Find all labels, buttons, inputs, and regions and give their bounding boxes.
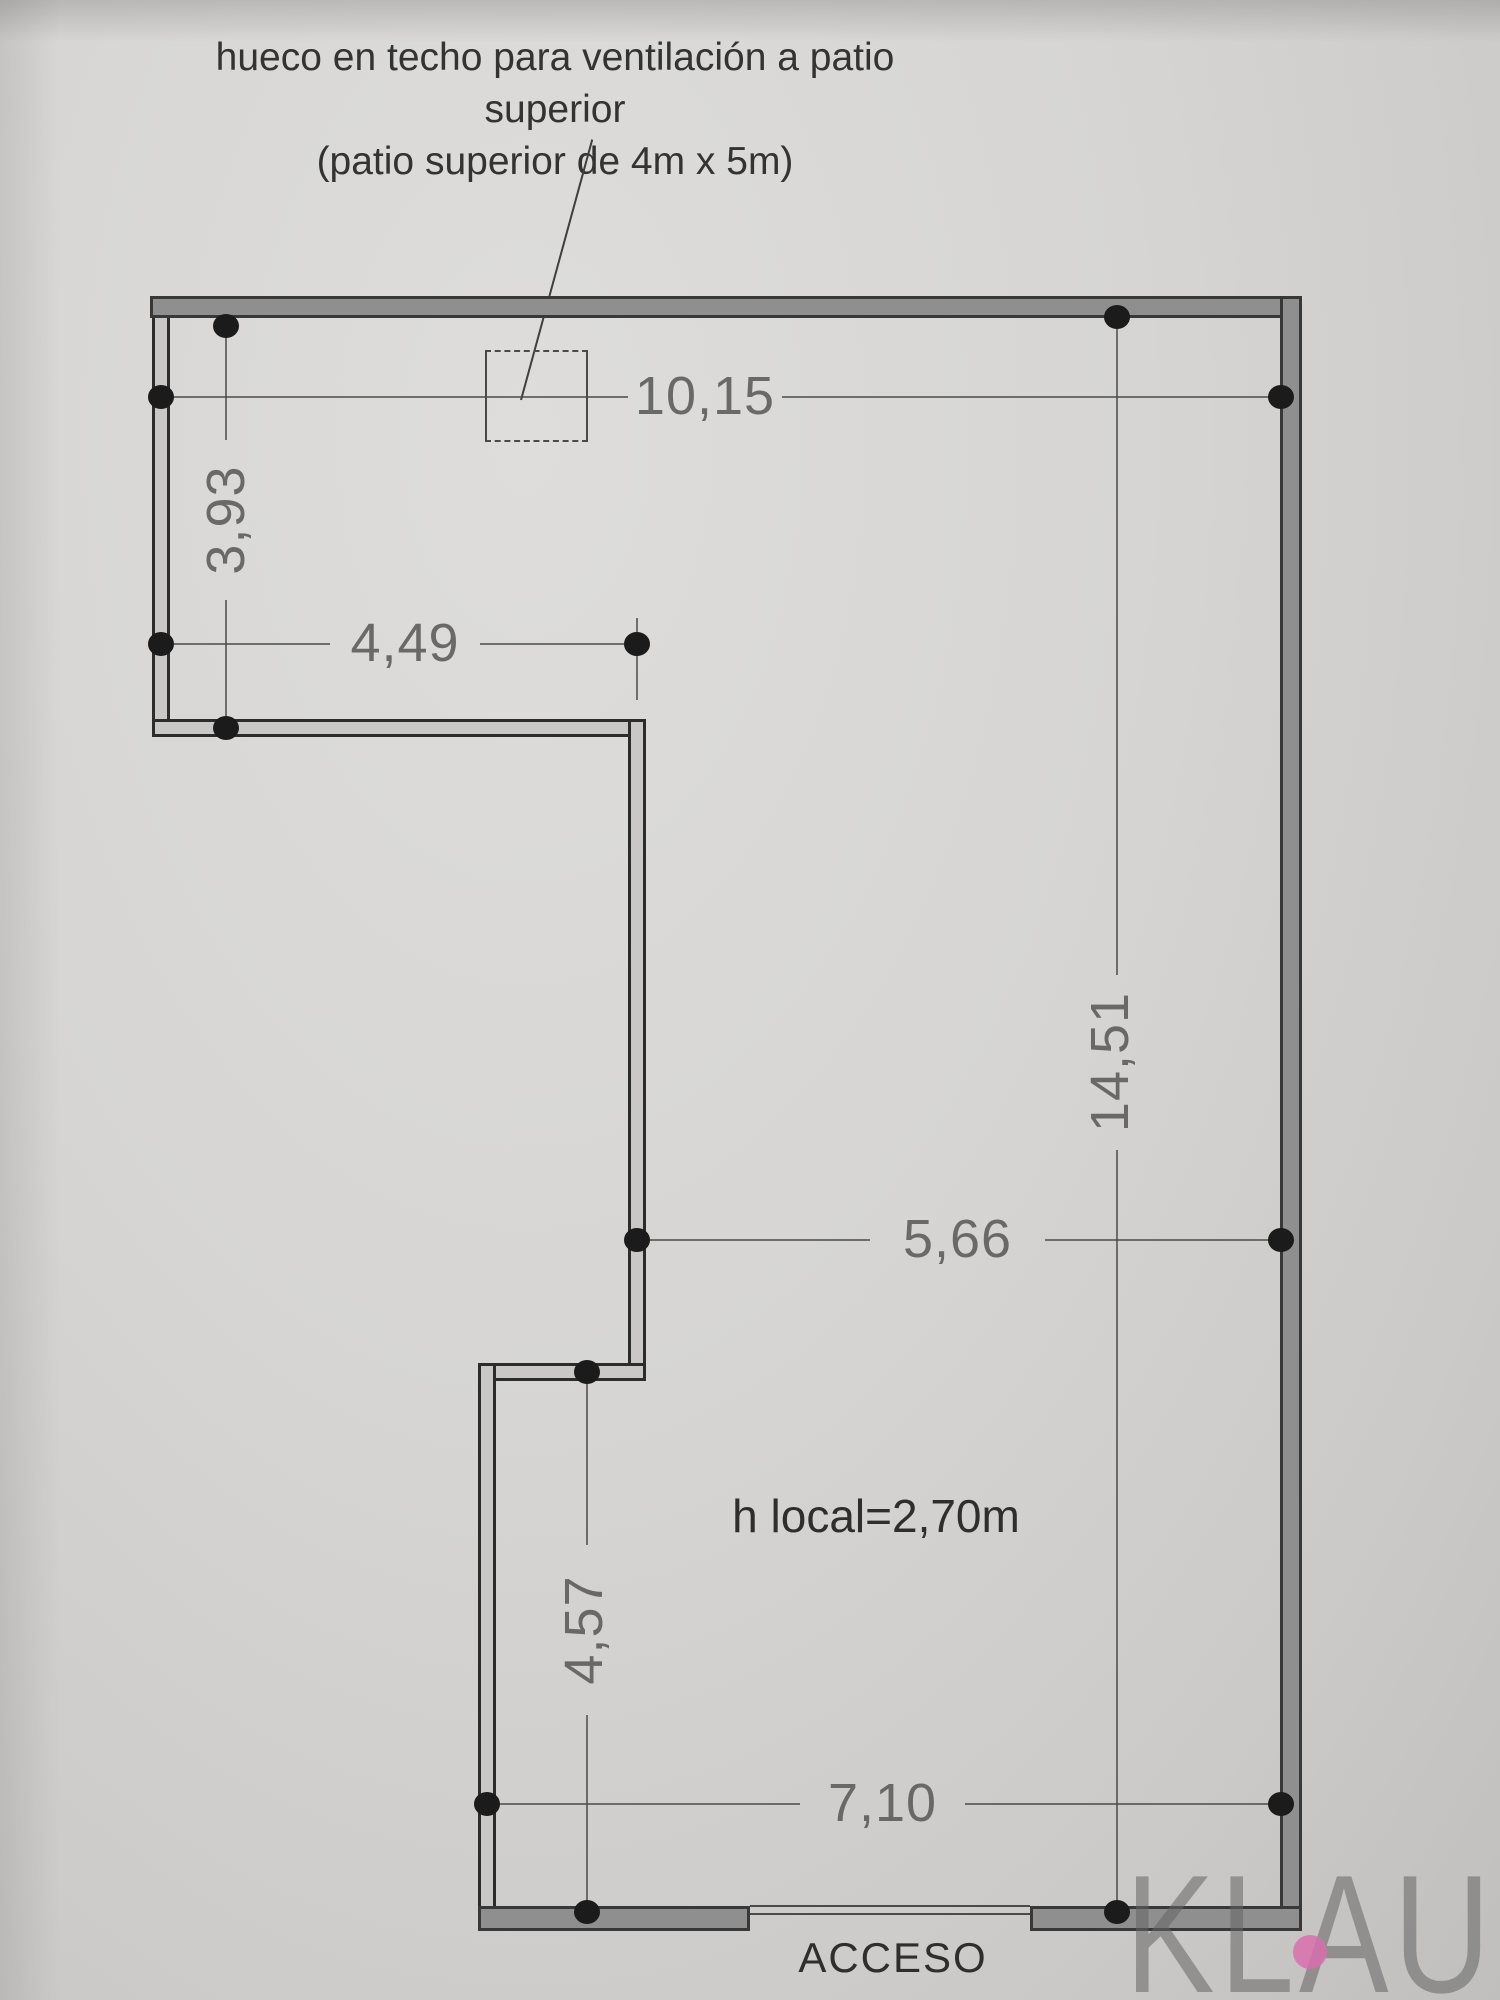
ceiling-vent-annotation-line1: hueco en techo para ventilación a patio … [140, 32, 970, 136]
dim-dot-bottom-width-left [474, 1792, 500, 1816]
dim-dot-top-width-right [1268, 385, 1294, 409]
entrance-opening [750, 1905, 1030, 1915]
dim-dot-mid-width-left [624, 1228, 650, 1252]
ceiling-vent-annotation-line2: (patio superior de 4m x 5m) [140, 136, 970, 188]
wall-right [1280, 296, 1302, 1930]
klaus-watermark: KLAUS [1125, 1850, 1500, 2000]
dim-line-lower-left-height-top [586, 1372, 588, 1545]
dim-label-upper-left-height: 3,93 [198, 440, 254, 600]
dim-line-upper-arm-width-right [480, 643, 637, 645]
wall-step [478, 1363, 646, 1381]
dim-dot-lower-left-height-bottom [574, 1900, 600, 1924]
dim-dot-lower-left-height-top [574, 1360, 600, 1384]
ceiling-vent-hole [485, 350, 588, 442]
dim-label-bottom-width: 7,10 [800, 1775, 965, 1831]
dim-line-upper-left-height-bottom [225, 600, 227, 728]
dim-dot-mid-width-right [1268, 1228, 1294, 1252]
dim-dot-top-width-left [148, 385, 174, 409]
wall-inner-vertical [628, 719, 646, 1381]
dim-label-mid-width: 5,66 [870, 1211, 1045, 1267]
dim-dot-right-height-top [1104, 305, 1130, 329]
dim-line-upper-left-height-top [225, 325, 227, 440]
dim-label-lower-left-height: 4,57 [556, 1550, 612, 1710]
dim-label-right-height: 14,51 [1082, 972, 1138, 1152]
klaus-watermark-pink-dot [1293, 1935, 1327, 1969]
dim-dot-upper-left-height-top [213, 314, 239, 338]
dim-line-lower-left-height-bottom [586, 1715, 588, 1912]
dim-line-bottom-width-right [965, 1803, 1281, 1805]
dim-line-mid-width-right [1045, 1239, 1281, 1241]
dim-dot-bottom-width-right [1268, 1792, 1294, 1816]
dim-line-upper-arm-width-left [161, 643, 330, 645]
ceiling-vent-annotation: hueco en techo para ventilación a patio … [140, 32, 970, 188]
dim-line-mid-width-left [637, 1239, 870, 1241]
dim-line-right-height-top [1116, 316, 1118, 975]
room-height-label: h local=2,70m [700, 1488, 1052, 1544]
scanned-floor-plan-page: hueco en techo para ventilación a patio … [0, 0, 1500, 2000]
wall-left-upper [152, 296, 170, 737]
dim-line-right-height-bottom [1116, 1150, 1118, 1908]
wall-lower-left [478, 1363, 496, 1930]
entrance-label: ACCESO [790, 1934, 996, 1982]
dim-label-upper-arm-width: 4,49 [330, 615, 480, 671]
dim-dot-upper-arm-width-right [624, 632, 650, 656]
dim-tick-upper-arm-width [636, 618, 638, 700]
dim-label-top-width: 10,15 [628, 368, 782, 424]
dim-line-bottom-width-left [487, 1803, 800, 1805]
wall-bottom-left-segment [478, 1906, 750, 1931]
dim-dot-upper-left-height-bottom [213, 716, 239, 740]
dim-dot-upper-arm-width-left [148, 632, 174, 656]
dim-line-top-width-right [782, 396, 1281, 398]
